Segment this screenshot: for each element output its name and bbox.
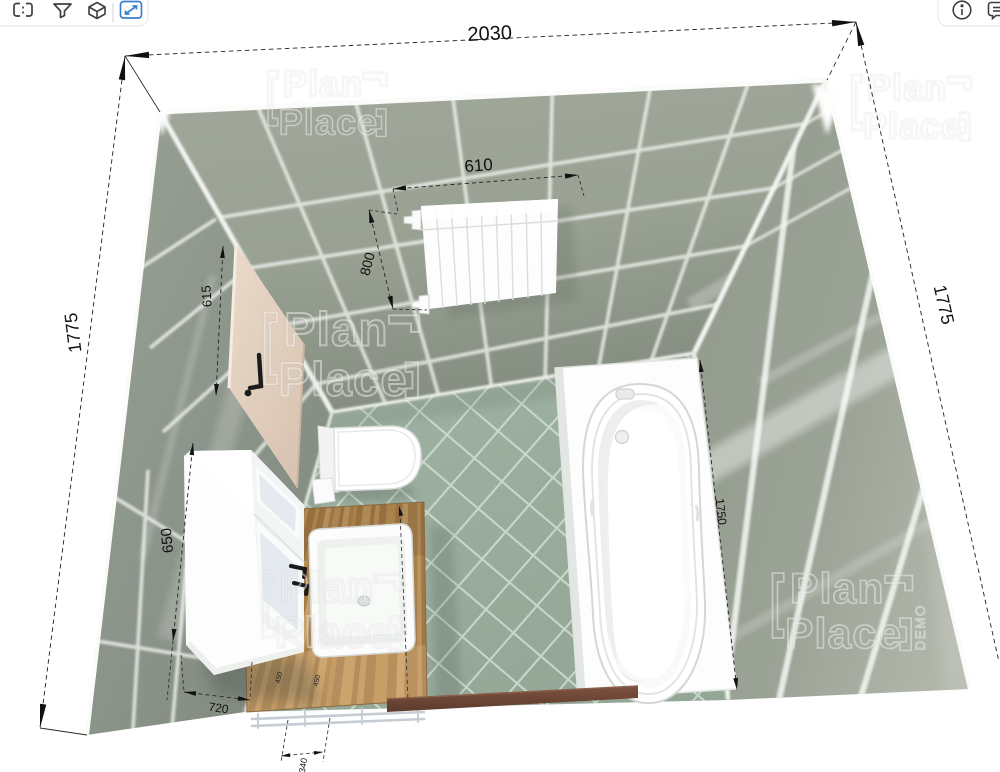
svg-text:Place: Place (279, 101, 378, 142)
svg-text:650: 650 (158, 527, 178, 554)
svg-text:Plan: Plan (284, 304, 389, 356)
svg-text:Place: Place (863, 105, 962, 146)
svg-text:720: 720 (208, 700, 230, 717)
svg-text:Plan: Plan (283, 63, 363, 104)
svg-text:1750: 1750 (713, 498, 730, 526)
svg-text:Place: Place (785, 611, 902, 658)
svg-text:DEMO: DEMO (913, 604, 928, 650)
svg-text:615: 615 (198, 285, 214, 307)
svg-text:610: 610 (464, 155, 494, 176)
svg-text:Plan: Plan (867, 67, 947, 108)
svg-text:Place: Place (275, 610, 392, 657)
svg-text:Plan: Plan (280, 565, 375, 612)
svg-text:Place: Place (279, 353, 408, 405)
svg-text:Plan: Plan (790, 566, 885, 613)
svg-text:2030: 2030 (467, 22, 512, 46)
